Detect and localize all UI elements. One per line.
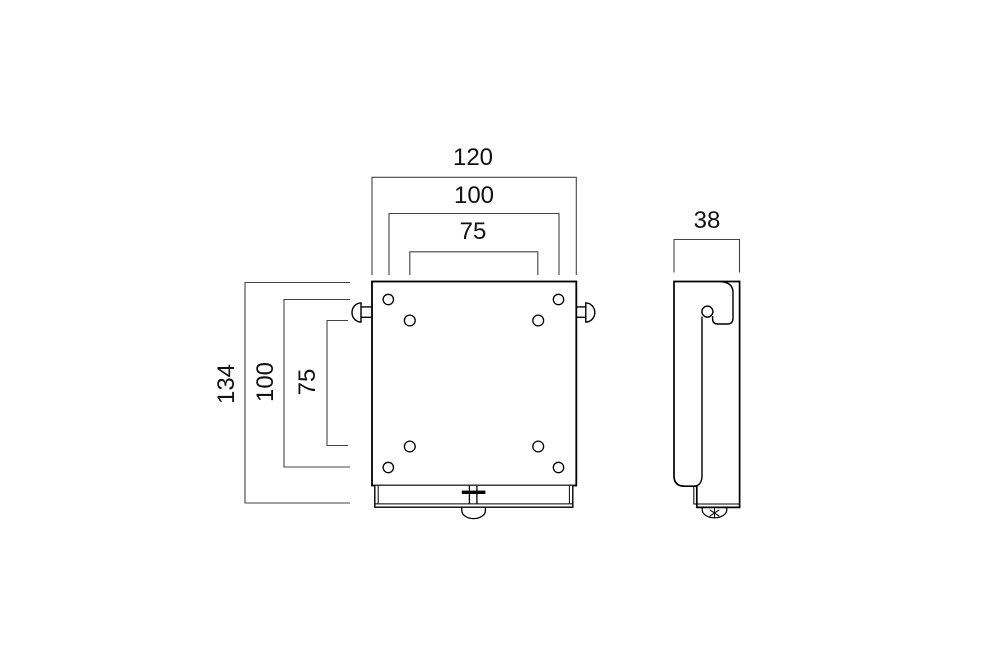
dim-label-side-depth-38: 38 bbox=[694, 209, 721, 233]
tension-screw-head bbox=[462, 507, 486, 518]
dim-label-front-width-120: 120 bbox=[453, 146, 493, 170]
dim-label-front-height-100: 100 bbox=[254, 362, 278, 402]
dim-label-front-width-75: 75 bbox=[460, 220, 487, 244]
dim-line-front-height-75 bbox=[327, 321, 348, 446]
dim-label-front-width-100: 100 bbox=[454, 184, 494, 208]
dim-label-front-height-134: 134 bbox=[215, 364, 239, 404]
front-view bbox=[352, 282, 595, 519]
left-screw-head bbox=[352, 303, 361, 322]
dim-label-front-height-75: 75 bbox=[296, 369, 320, 396]
right-screw-shaft bbox=[576, 307, 586, 317]
technical-drawing: 120 100 75 38 134 100 75 bbox=[0, 0, 1000, 666]
side-screw-phillips-icon bbox=[710, 508, 720, 518]
dim-line-front-width-75 bbox=[410, 252, 538, 275]
side-hook-pin bbox=[702, 306, 713, 317]
right-side-screw bbox=[576, 303, 595, 322]
right-screw-head bbox=[586, 303, 595, 322]
side-view bbox=[674, 282, 740, 519]
side-bottom-screw bbox=[702, 507, 727, 518]
left-screw-shaft bbox=[361, 307, 372, 317]
drawing-linework bbox=[0, 0, 1000, 666]
tension-screw-flange bbox=[462, 491, 486, 494]
bottom-bracket-bar bbox=[375, 486, 573, 507]
mount-plate bbox=[372, 282, 576, 486]
left-side-screw bbox=[352, 303, 372, 322]
dim-line-side-depth-38 bbox=[674, 240, 740, 273]
